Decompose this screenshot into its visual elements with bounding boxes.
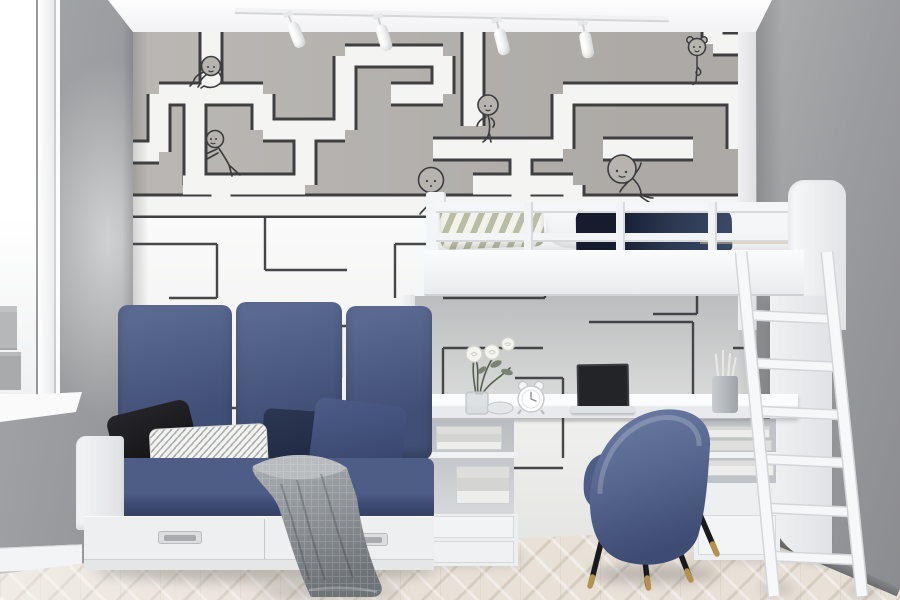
chair-leg-brass-tip xyxy=(647,578,648,588)
loft-ladder xyxy=(735,245,870,600)
chair-leg-brass-tip xyxy=(687,571,691,580)
book-stack xyxy=(436,426,502,450)
maze-upper-band xyxy=(133,30,757,218)
chair-leg-brass-tip xyxy=(713,544,718,554)
book-stack xyxy=(456,466,510,504)
alarm-clock xyxy=(514,380,548,416)
throw-knit-texture xyxy=(253,455,382,597)
glass-bowl xyxy=(487,402,513,414)
desk-chair xyxy=(578,398,726,600)
ladder-rails xyxy=(741,252,862,596)
spotlight-can xyxy=(578,30,595,59)
flower-leaves xyxy=(476,359,513,377)
loft-bed-rail-top xyxy=(436,202,792,213)
pencil xyxy=(722,350,724,378)
handle-slot xyxy=(164,535,196,541)
white-roses xyxy=(466,338,515,363)
drawer-front xyxy=(424,541,514,563)
window-building-view xyxy=(0,306,17,350)
loft-bed-baluster xyxy=(524,202,533,250)
loft-bed-baluster xyxy=(708,202,717,250)
drawer-handle xyxy=(158,531,202,544)
window-frame xyxy=(0,0,60,398)
glass-vase xyxy=(466,392,488,414)
shelf-board xyxy=(426,452,518,458)
loft-bed-rail-mid xyxy=(436,233,792,242)
chair-back-shell xyxy=(590,409,710,564)
window-sash xyxy=(38,0,56,396)
room xyxy=(0,0,900,600)
window-glass xyxy=(0,0,36,394)
drawer-front xyxy=(424,516,514,538)
chair-leg-brass-tip xyxy=(590,577,593,586)
throw-blanket xyxy=(245,440,405,600)
desk-drawers xyxy=(420,514,518,566)
loft-bed-baluster xyxy=(616,202,625,250)
window-building-view xyxy=(0,352,21,390)
